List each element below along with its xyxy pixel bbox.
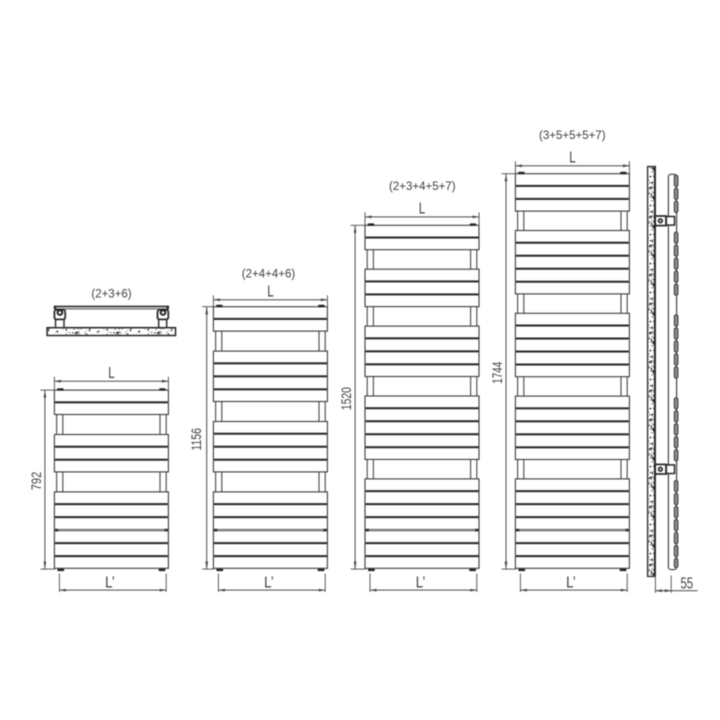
svg-text:L: L	[267, 283, 274, 300]
svg-text:(2+3+6): (2+3+6)	[91, 288, 131, 300]
svg-text:L: L	[108, 365, 115, 382]
svg-text:L: L	[569, 149, 576, 166]
svg-text:(2+3+4+5+7): (2+3+4+5+7)	[389, 181, 456, 193]
svg-text:1520: 1520	[338, 387, 354, 410]
svg-text:(3+5+5+5+7): (3+5+5+5+7)	[539, 130, 606, 142]
svg-text:792: 792	[28, 472, 44, 491]
svg-text:(2+4+4+6): (2+4+4+6)	[242, 269, 296, 281]
svg-text:L’: L’	[264, 574, 274, 591]
svg-text:L’: L’	[566, 574, 576, 591]
svg-text:L: L	[419, 201, 426, 218]
svg-text:L’: L’	[105, 574, 115, 591]
svg-text:55: 55	[681, 575, 694, 592]
svg-text:1744: 1744	[489, 362, 505, 384]
svg-text:1156: 1156	[188, 428, 204, 451]
svg-text:L’: L’	[416, 574, 426, 591]
